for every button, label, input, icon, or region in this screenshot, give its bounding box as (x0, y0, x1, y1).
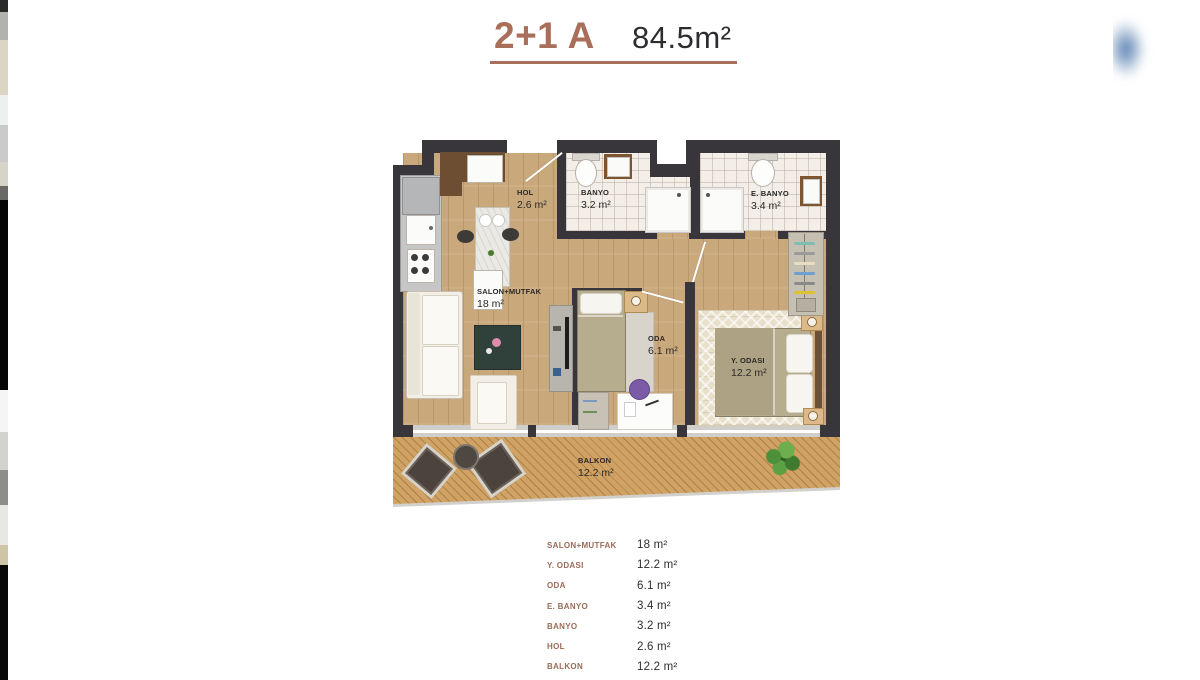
legend-label: Y. ODASI (547, 561, 637, 570)
strip-seg (0, 390, 8, 432)
wall (557, 231, 826, 239)
strip-seg (0, 95, 8, 125)
legend-value: 6.1 m² (637, 580, 671, 592)
room-area: 12.2 m² (578, 467, 614, 479)
hanging-clothes (794, 252, 815, 255)
legend-row: BANYO 3.2 m² (547, 616, 767, 636)
tv (565, 317, 569, 369)
strip-seg (0, 0, 8, 12)
wall-pier (528, 425, 536, 437)
room-area: 2.6 m² (517, 199, 547, 211)
desk-lamp (629, 379, 650, 400)
strip-seg (0, 470, 8, 505)
legend-value: 3.4 m² (637, 600, 671, 612)
nightstand-lamp (631, 296, 641, 306)
kitchen-appliance (467, 155, 503, 183)
burner (422, 267, 429, 274)
sofa-cushion (422, 346, 459, 396)
blue-smudge-decoration (1113, 10, 1161, 90)
room-area: 6.1 m² (648, 345, 678, 357)
room-label-banyo: BANYO 3.2 m² (581, 189, 611, 211)
wall-pier (820, 425, 840, 437)
room-label-y-odasi: Y. ODASI 12.2 m² (731, 357, 767, 379)
entry-opening (507, 140, 557, 153)
tv-stand (549, 305, 573, 392)
hanging-clothes (794, 282, 815, 285)
wardrobe-drawer (796, 298, 816, 312)
wall (826, 140, 840, 437)
floor-plan: HOL 2.6 m² BANYO 3.2 m² E. BANYO 3.4 m² … (393, 130, 840, 508)
toilet-bowl (575, 159, 597, 187)
paper (624, 402, 636, 417)
wall-pier (393, 425, 413, 437)
room-area: 18 m² (477, 298, 541, 310)
wall (690, 153, 700, 237)
wall-pier (677, 425, 687, 437)
page: { "header": { "unit_type": "2+1 A", "tot… (0, 0, 1200, 680)
legend-row: E. BANYO 3.4 m² (547, 596, 767, 616)
shower-cabin (645, 187, 691, 233)
stool (502, 228, 519, 241)
title-underline (490, 61, 737, 64)
faucet (429, 226, 433, 230)
pillow (580, 293, 622, 314)
bowl (488, 250, 494, 256)
flowers (492, 338, 501, 347)
room-name: HOL (517, 189, 547, 198)
legend-label: HOL (547, 642, 637, 651)
tv-stand-decor (553, 326, 561, 331)
plant (761, 439, 803, 483)
wall (685, 282, 695, 425)
fridge (402, 177, 440, 215)
hanging-clothes (794, 262, 815, 265)
armchair-cushion (477, 382, 507, 424)
balcony-deck: BALKON 12.2 m² (393, 437, 840, 505)
strip-seg (0, 12, 8, 40)
blanket-fold (578, 315, 623, 317)
legend-value: 12.2 m² (637, 661, 677, 673)
room-name: BALKON (578, 457, 614, 466)
legend-row: Y. ODASI 12.2 m² (547, 555, 767, 575)
room-label-hol: HOL 2.6 m² (517, 189, 547, 211)
strip-seg (0, 545, 8, 565)
plate (479, 214, 492, 227)
strip-seg (0, 125, 8, 162)
sofa-cushion (422, 295, 459, 345)
wall-notch (657, 140, 686, 164)
strip-seg (0, 432, 8, 470)
legend-label: BANYO (547, 622, 637, 631)
burner (422, 254, 429, 261)
room-label-oda: ODA 6.1 m² (648, 335, 678, 357)
legend-label: BALKON (547, 662, 637, 671)
legend-label: SALON+MUTFAK (547, 541, 637, 550)
unit-total-area: 84.5m² (632, 20, 731, 56)
shower-drain (677, 193, 681, 197)
strip-seg (0, 186, 8, 200)
stool (457, 230, 474, 243)
burner (411, 267, 418, 274)
legend-row: HOL 2.6 m² (547, 636, 767, 656)
strip-seg (0, 40, 8, 95)
legend-value: 18 m² (637, 539, 667, 551)
room-area: 3.2 m² (581, 199, 611, 211)
burner (411, 254, 418, 261)
hanging-clothes (794, 242, 815, 245)
legend-value: 2.6 m² (637, 641, 671, 653)
wall (557, 153, 566, 231)
balcony: BALKON 12.2 m² (393, 437, 840, 508)
vase (486, 348, 492, 354)
room-name: Y. ODASI (731, 357, 767, 366)
balcony-table (453, 444, 479, 470)
room-label-e-banyo: E. BANYO 3.4 m² (751, 190, 789, 212)
unit-type-title: 2+1 A (494, 15, 595, 57)
legend-row: BALKON 12.2 m² (547, 657, 767, 677)
strip-seg (0, 565, 8, 680)
plate (492, 214, 505, 227)
hanging-clothes (794, 291, 815, 294)
headboard (815, 326, 822, 416)
toilet-bowl (751, 159, 775, 187)
strip-seg (0, 200, 8, 390)
nightstand-lamp (807, 317, 817, 327)
hanging-clothes (794, 272, 815, 275)
room-name: E. BANYO (751, 190, 789, 199)
legend-row: ODA 6.1 m² (547, 576, 767, 596)
room-name: SALON+MUTFAK (477, 288, 541, 297)
dresser-items (583, 400, 597, 402)
sink-basin (803, 179, 820, 204)
kitchen-cabinet (440, 152, 462, 196)
legend-label: E. BANYO (547, 602, 637, 611)
legend-row: SALON+MUTFAK 18 m² (547, 535, 767, 555)
shower-drain (706, 193, 710, 197)
sofa-back (408, 293, 420, 395)
legend-value: 12.2 m² (637, 559, 677, 571)
lounge-chair (401, 443, 457, 499)
room-label-salon: SALON+MUTFAK 18 m² (477, 288, 541, 310)
door-opening (745, 231, 778, 239)
room-area: 3.4 m² (751, 200, 789, 212)
strip-seg (0, 162, 8, 186)
coffee-table (474, 325, 521, 370)
tv-stand-decor (553, 368, 561, 376)
window-glass-line (393, 430, 840, 433)
strip-seg (0, 505, 8, 545)
room-name: BANYO (581, 189, 611, 198)
blanket-fold (773, 328, 775, 415)
area-legend: SALON+MUTFAK 18 m² Y. ODASI 12.2 m² ODA … (547, 535, 767, 677)
nightstand-lamp (808, 411, 818, 421)
pillow (786, 334, 813, 373)
room-area: 12.2 m² (731, 367, 767, 379)
room-label-balkon: BALKON 12.2 m² (578, 457, 614, 479)
legend-label: ODA (547, 581, 637, 590)
dresser-items (583, 411, 597, 413)
kitchen-sink (406, 215, 436, 245)
sink-basin (607, 157, 630, 177)
legend-value: 3.2 m² (637, 620, 671, 632)
room-name: ODA (648, 335, 678, 344)
